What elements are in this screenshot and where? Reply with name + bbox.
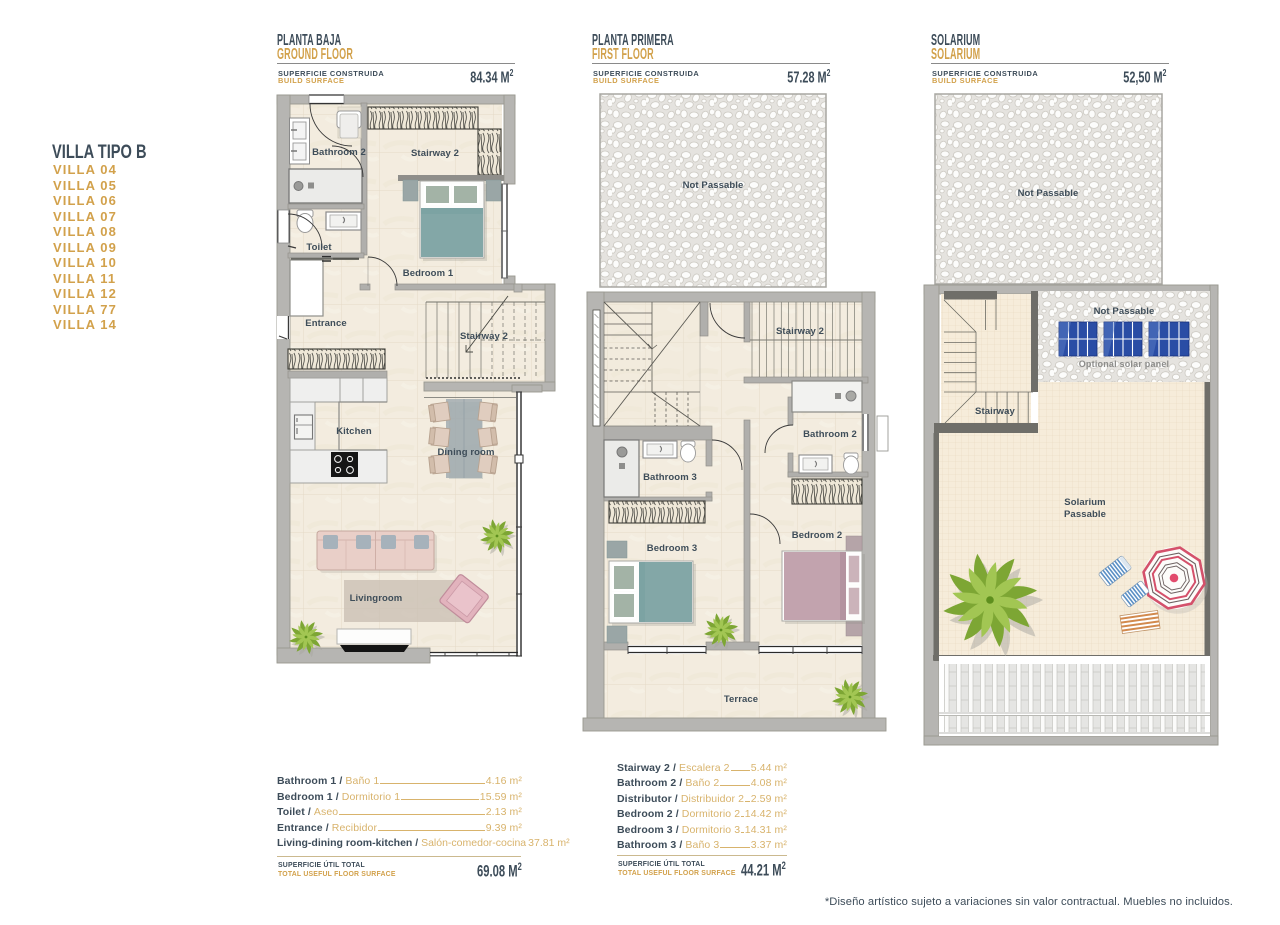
svg-text:Not Passable: Not Passable bbox=[1094, 306, 1155, 317]
svg-text:Stairway: Stairway bbox=[975, 406, 1015, 417]
svg-text:Dining room: Dining room bbox=[437, 447, 494, 458]
svg-text:Terrace: Terrace bbox=[724, 694, 758, 705]
svg-text:Stairway 2: Stairway 2 bbox=[776, 326, 824, 337]
svg-text:Bedroom 1: Bedroom 1 bbox=[403, 268, 454, 279]
svg-text:Bathroom 2: Bathroom 2 bbox=[803, 429, 857, 440]
svg-text:Stairway 2: Stairway 2 bbox=[460, 331, 508, 342]
svg-text:Not Passable: Not Passable bbox=[1018, 188, 1079, 199]
svg-text:Bathroom 3: Bathroom 3 bbox=[643, 472, 697, 483]
svg-text:Bathroom 2: Bathroom 2 bbox=[312, 147, 366, 158]
svg-text:Bedroom 3: Bedroom 3 bbox=[647, 543, 698, 554]
svg-text:Optional solar panel: Optional solar panel bbox=[1079, 359, 1170, 369]
svg-text:Passable: Passable bbox=[1064, 509, 1106, 520]
svg-text:Solarium: Solarium bbox=[1064, 497, 1105, 508]
svg-text:Stairway 2: Stairway 2 bbox=[411, 148, 459, 159]
svg-text:Livingroom: Livingroom bbox=[350, 593, 403, 604]
svg-text:Not Passable: Not Passable bbox=[683, 180, 744, 191]
svg-text:Entrance: Entrance bbox=[305, 318, 346, 329]
svg-text:Toilet: Toilet bbox=[306, 242, 332, 253]
svg-text:Kitchen: Kitchen bbox=[336, 426, 372, 437]
svg-text:Bedroom 2: Bedroom 2 bbox=[792, 530, 843, 541]
